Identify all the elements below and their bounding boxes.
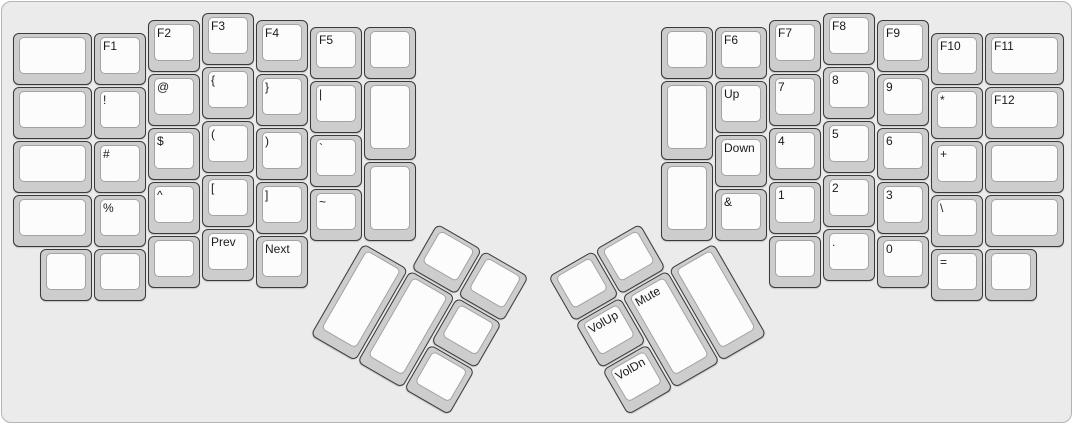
keycap-top-surface — [991, 199, 1058, 236]
key-blank[interactable] — [94, 249, 146, 301]
key-next[interactable]: Next — [256, 236, 308, 288]
keycap-top-surface — [991, 145, 1058, 182]
keyboard-canvas: F1!#%F2@$^F3{([PrevF4})]NextF5|`~ F6UpDo… — [1, 1, 1072, 423]
key-label: 6 — [886, 134, 893, 148]
keycap-top-surface — [469, 257, 522, 309]
keycap-top-surface — [100, 253, 140, 290]
key-ampersand[interactable]: & — [715, 189, 767, 241]
key-label: F2 — [157, 26, 171, 40]
key-tilde[interactable]: ~ — [310, 189, 362, 241]
key-label: ^ — [157, 188, 163, 202]
key-blank[interactable] — [13, 141, 92, 193]
key-blank[interactable] — [13, 33, 92, 85]
key-label: [ — [211, 181, 214, 195]
key-blank[interactable] — [661, 162, 713, 241]
keycap-top-surface — [422, 230, 475, 282]
keycap-top-surface — [775, 240, 815, 277]
keycap-top-surface — [19, 91, 86, 128]
key-blank[interactable] — [985, 249, 1037, 301]
keycap-top-surface — [602, 230, 655, 282]
key-f12[interactable]: F12 — [985, 87, 1064, 139]
key-paren-open[interactable]: ( — [202, 121, 254, 173]
key-label: F11 — [994, 39, 1014, 53]
key-blank[interactable] — [985, 141, 1064, 193]
key-blank[interactable] — [769, 236, 821, 288]
key-label: 2 — [832, 181, 839, 195]
key-label: @ — [157, 80, 169, 94]
key-dollar[interactable]: $ — [148, 128, 200, 180]
keycap-top-surface — [667, 85, 707, 149]
key-down[interactable]: Down — [715, 135, 767, 187]
key-label: $ — [157, 134, 164, 148]
key-label: 0 — [886, 242, 893, 256]
key-label: ( — [211, 127, 215, 141]
key-caret[interactable]: ^ — [148, 182, 200, 234]
key-label: 9 — [886, 80, 893, 94]
key-label: F10 — [940, 39, 961, 53]
key-equals[interactable]: = — [931, 249, 983, 301]
key-blank[interactable] — [364, 27, 416, 79]
key-digit-2[interactable]: 2 — [823, 175, 875, 227]
key-brace-open[interactable]: { — [202, 67, 254, 119]
key-label: { — [211, 73, 215, 87]
key-label: F9 — [886, 26, 900, 40]
key-label: & — [724, 195, 732, 209]
key-backslash[interactable]: \ — [931, 195, 983, 247]
key-label: 1 — [778, 188, 785, 202]
keycap-top-surface — [19, 145, 86, 182]
key-blank[interactable] — [148, 236, 200, 288]
key-f4[interactable]: F4 — [256, 20, 308, 72]
keycap-top-surface — [370, 31, 410, 68]
key-label: F7 — [778, 26, 792, 40]
key-hash[interactable]: # — [94, 141, 146, 193]
key-label: } — [265, 80, 269, 94]
key-digit-9[interactable]: 9 — [877, 74, 929, 126]
key-f11[interactable]: F11 — [985, 33, 1064, 85]
keycap-top-surface — [555, 257, 608, 309]
key-label: F6 — [724, 33, 738, 47]
key-digit-7[interactable]: 7 — [769, 74, 821, 126]
key-label: Next — [265, 242, 290, 256]
key-label: 5 — [832, 127, 839, 141]
key-up[interactable]: Up — [715, 81, 767, 133]
key-pipe[interactable]: | — [310, 81, 362, 133]
key-blank[interactable] — [364, 162, 416, 241]
key-blank[interactable] — [13, 87, 92, 139]
key-digit-0[interactable]: 0 — [877, 236, 929, 288]
key-label: % — [103, 201, 114, 215]
key-label: = — [940, 255, 947, 269]
keycap-top-surface — [19, 199, 86, 236]
key-label: ! — [103, 93, 106, 107]
key-period[interactable]: . — [823, 229, 875, 281]
key-label: * — [940, 93, 945, 107]
key-label: F1 — [103, 39, 117, 53]
key-label: + — [940, 147, 947, 161]
key-digit-6[interactable]: 6 — [877, 128, 929, 180]
keycap-top-surface — [154, 240, 194, 277]
keycap-top-surface — [667, 166, 707, 230]
key-blank[interactable] — [661, 27, 713, 79]
key-label: 7 — [778, 80, 785, 94]
key-label: \ — [940, 201, 943, 215]
key-digit-3[interactable]: 3 — [877, 182, 929, 234]
key-label: | — [319, 87, 322, 101]
keycap-top-surface — [19, 37, 86, 74]
key-paren-close[interactable]: ) — [256, 128, 308, 180]
keycap-top-surface — [370, 166, 410, 230]
key-label: Up — [724, 87, 739, 101]
key-label: ` — [319, 141, 323, 155]
key-plus[interactable]: + — [931, 141, 983, 193]
key-asterisk[interactable]: * — [931, 87, 983, 139]
key-blank[interactable] — [661, 81, 713, 160]
key-label: F4 — [265, 26, 279, 40]
keycap-top-surface — [370, 85, 410, 149]
key-backtick[interactable]: ` — [310, 135, 362, 187]
key-brace-close[interactable]: } — [256, 74, 308, 126]
keycap-top-surface — [46, 253, 86, 290]
key-blank[interactable] — [364, 81, 416, 160]
key-f6[interactable]: F6 — [715, 27, 767, 79]
key-f5[interactable]: F5 — [310, 27, 362, 79]
key-label: 3 — [886, 188, 893, 202]
key-f3[interactable]: F3 — [202, 13, 254, 65]
key-blank[interactable] — [13, 195, 92, 247]
keycap-top-surface — [667, 31, 707, 68]
key-exclamation[interactable]: ! — [94, 87, 146, 139]
key-bracket-open[interactable]: [ — [202, 175, 254, 227]
key-digit-5[interactable]: 5 — [823, 121, 875, 173]
key-digit-1[interactable]: 1 — [769, 182, 821, 234]
key-percent[interactable]: % — [94, 195, 146, 247]
key-label: 4 — [778, 134, 785, 148]
key-prev[interactable]: Prev — [202, 229, 254, 281]
key-label: F12 — [994, 93, 1015, 107]
key-blank[interactable] — [40, 249, 92, 301]
key-f7[interactable]: F7 — [769, 20, 821, 72]
key-label: Prev — [211, 235, 236, 249]
key-f8[interactable]: F8 — [823, 13, 875, 65]
key-at[interactable]: @ — [148, 74, 200, 126]
key-label: ) — [265, 134, 269, 148]
keycap-top-surface — [991, 253, 1031, 290]
key-label: F8 — [832, 19, 846, 33]
key-digit-4[interactable]: 4 — [769, 128, 821, 180]
key-f2[interactable]: F2 — [148, 20, 200, 72]
key-f10[interactable]: F10 — [931, 33, 983, 85]
key-bracket-close[interactable]: ] — [256, 182, 308, 234]
key-label: # — [103, 147, 110, 161]
key-blank[interactable] — [985, 195, 1064, 247]
key-label: F3 — [211, 19, 225, 33]
key-label: 8 — [832, 73, 839, 87]
key-digit-8[interactable]: 8 — [823, 67, 875, 119]
key-label: ] — [265, 188, 268, 202]
key-f9[interactable]: F9 — [877, 20, 929, 72]
key-label: ~ — [319, 195, 326, 209]
key-label: Down — [724, 141, 755, 155]
key-label: F5 — [319, 33, 333, 47]
key-f1[interactable]: F1 — [94, 33, 146, 85]
key-label: . — [832, 235, 835, 249]
